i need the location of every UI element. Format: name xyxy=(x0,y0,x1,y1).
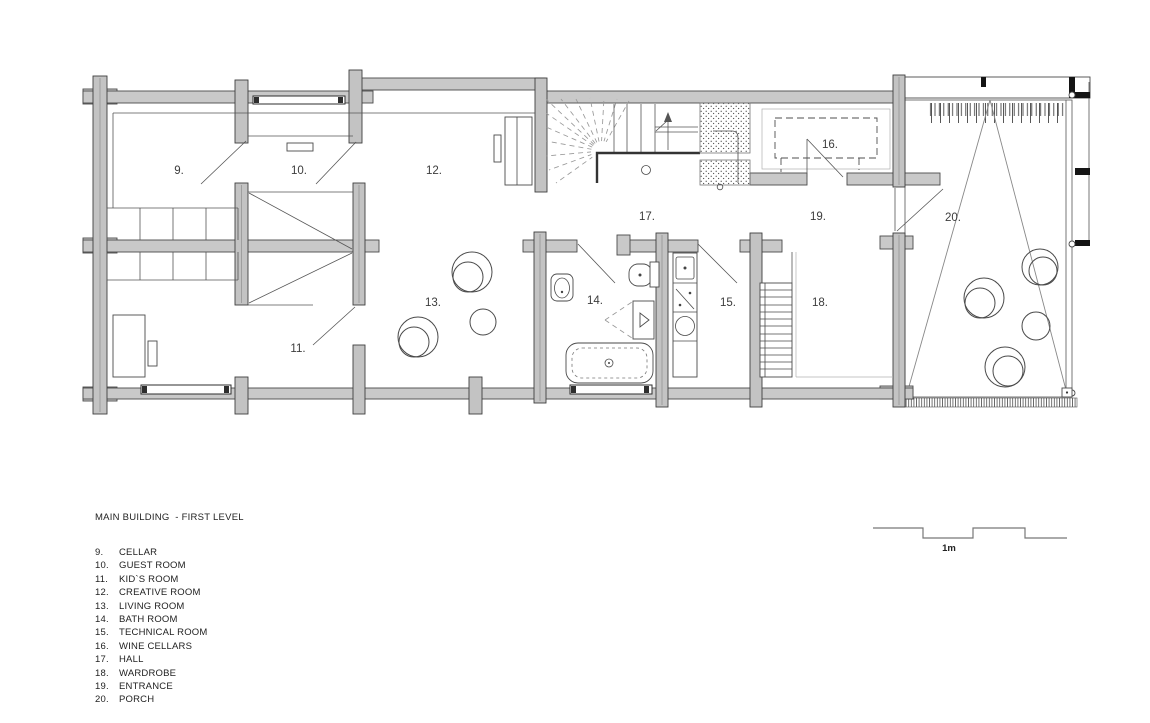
wall-bath-north-a xyxy=(523,240,577,252)
wall-post-stub xyxy=(617,235,630,255)
stone xyxy=(398,317,438,357)
wall-north-room12 xyxy=(353,78,545,90)
room-label-creativeroom: 12. xyxy=(426,165,442,177)
legend-item: 11.KID`S ROOM xyxy=(95,573,244,586)
window-south-bath xyxy=(570,385,652,394)
room-label-entrance: 19. xyxy=(810,211,826,223)
porch-top-hatch-long xyxy=(928,103,1065,123)
door-swing-kidsroom xyxy=(313,307,355,345)
wall-winecellar-south-a xyxy=(750,173,807,185)
shelf-room12 xyxy=(494,135,501,162)
legend-item: 17.HALL xyxy=(95,653,244,666)
legend-item: 20.PORCH xyxy=(95,693,244,706)
post xyxy=(353,345,365,414)
room-label-guestroom: 10. xyxy=(291,165,307,177)
shaft-diagonal xyxy=(249,253,352,303)
pergola-bar-bottom xyxy=(1075,240,1090,246)
pergola-bar-top xyxy=(1073,92,1090,98)
post xyxy=(469,377,482,414)
legend: MAIN BUILDING - FIRST LEVEL 9.CELLAR 10.… xyxy=(95,512,244,707)
toilet-cistern xyxy=(650,262,659,287)
stone xyxy=(1022,249,1058,285)
stair-guard-wall xyxy=(597,153,700,183)
shower xyxy=(633,301,654,339)
post xyxy=(349,70,362,143)
roof-line-right xyxy=(990,100,1066,390)
room-label-wardrobe: 18. xyxy=(812,297,828,309)
hall-column xyxy=(642,166,651,175)
stone xyxy=(470,309,496,335)
porch-structure xyxy=(898,77,1090,407)
legend-item: 10.GUEST ROOM xyxy=(95,559,244,572)
chimney xyxy=(700,103,750,190)
porch-bottom-hatch xyxy=(905,398,1077,407)
post xyxy=(235,377,248,414)
legend-item: 16.WINE CELLARS xyxy=(95,640,244,653)
room-label-livingroom: 13. xyxy=(425,297,441,309)
door-swing-guestroom xyxy=(316,142,356,184)
stair-direction-arrow xyxy=(664,112,672,122)
overhead-dashed-outline xyxy=(775,118,877,158)
post xyxy=(235,80,248,143)
wall-north-right xyxy=(545,91,905,103)
scale-bar-label: 1m xyxy=(942,543,956,554)
legend-item: 19.ENTRANCE xyxy=(95,680,244,693)
corner-marker xyxy=(1069,241,1075,247)
room-label-porch: 20. xyxy=(945,212,961,224)
room-label-kidsroom: 11. xyxy=(290,343,305,355)
corner-post-dot xyxy=(1066,391,1068,393)
stone xyxy=(452,252,492,292)
door-swing-technical xyxy=(698,244,737,283)
legend-title: MAIN BUILDING - FIRST LEVEL xyxy=(95,512,244,524)
room-label-technicalroom: 15. xyxy=(720,297,736,309)
porch-top-beam xyxy=(898,77,1090,98)
window-north xyxy=(253,96,345,104)
stone xyxy=(964,278,1004,318)
stone xyxy=(1022,312,1050,340)
legend-item: 12.CREATIVE ROOM xyxy=(95,586,244,599)
legend-items: 9.CELLAR 10.GUEST ROOM 11.KID`S ROOM 12.… xyxy=(95,546,244,707)
scale-bar-line xyxy=(873,528,1067,538)
room-label-bathroom: 14. xyxy=(587,295,603,307)
nightstand-room11 xyxy=(148,341,157,366)
door-swing-entrance xyxy=(897,189,943,231)
legend-item: 14.BATH ROOM xyxy=(95,613,244,626)
pergola-bar-mid xyxy=(1075,168,1090,175)
room-label-cellar: 9. xyxy=(174,165,184,177)
wall-middle-left xyxy=(83,240,379,252)
beam-tick xyxy=(981,77,986,87)
legend-item: 9.CELLAR xyxy=(95,546,244,559)
stair xyxy=(546,98,700,183)
wardrobe-shelving xyxy=(760,283,792,377)
room-label-winecellars: 16. xyxy=(822,139,838,151)
wall-niche xyxy=(287,143,313,151)
roof-line-left xyxy=(908,100,990,390)
corner-marker xyxy=(1069,92,1075,98)
window-south-kidsroom xyxy=(141,385,231,394)
door-swing-bath xyxy=(578,244,615,283)
legend-item: 15.TECHNICAL ROOM xyxy=(95,626,244,639)
bed-room11 xyxy=(113,315,145,377)
legend-item: 18.WARDROBE xyxy=(95,667,244,680)
door-swing-cellar xyxy=(201,141,246,184)
legend-item: 13.LIVING ROOM xyxy=(95,600,244,613)
porch-outline xyxy=(905,100,1072,397)
scale-bar: 1m xyxy=(873,528,1067,554)
bed-room12 xyxy=(505,117,532,185)
post xyxy=(535,78,547,192)
technical-counter xyxy=(673,253,697,377)
room-label-hall: 17. xyxy=(639,211,655,223)
